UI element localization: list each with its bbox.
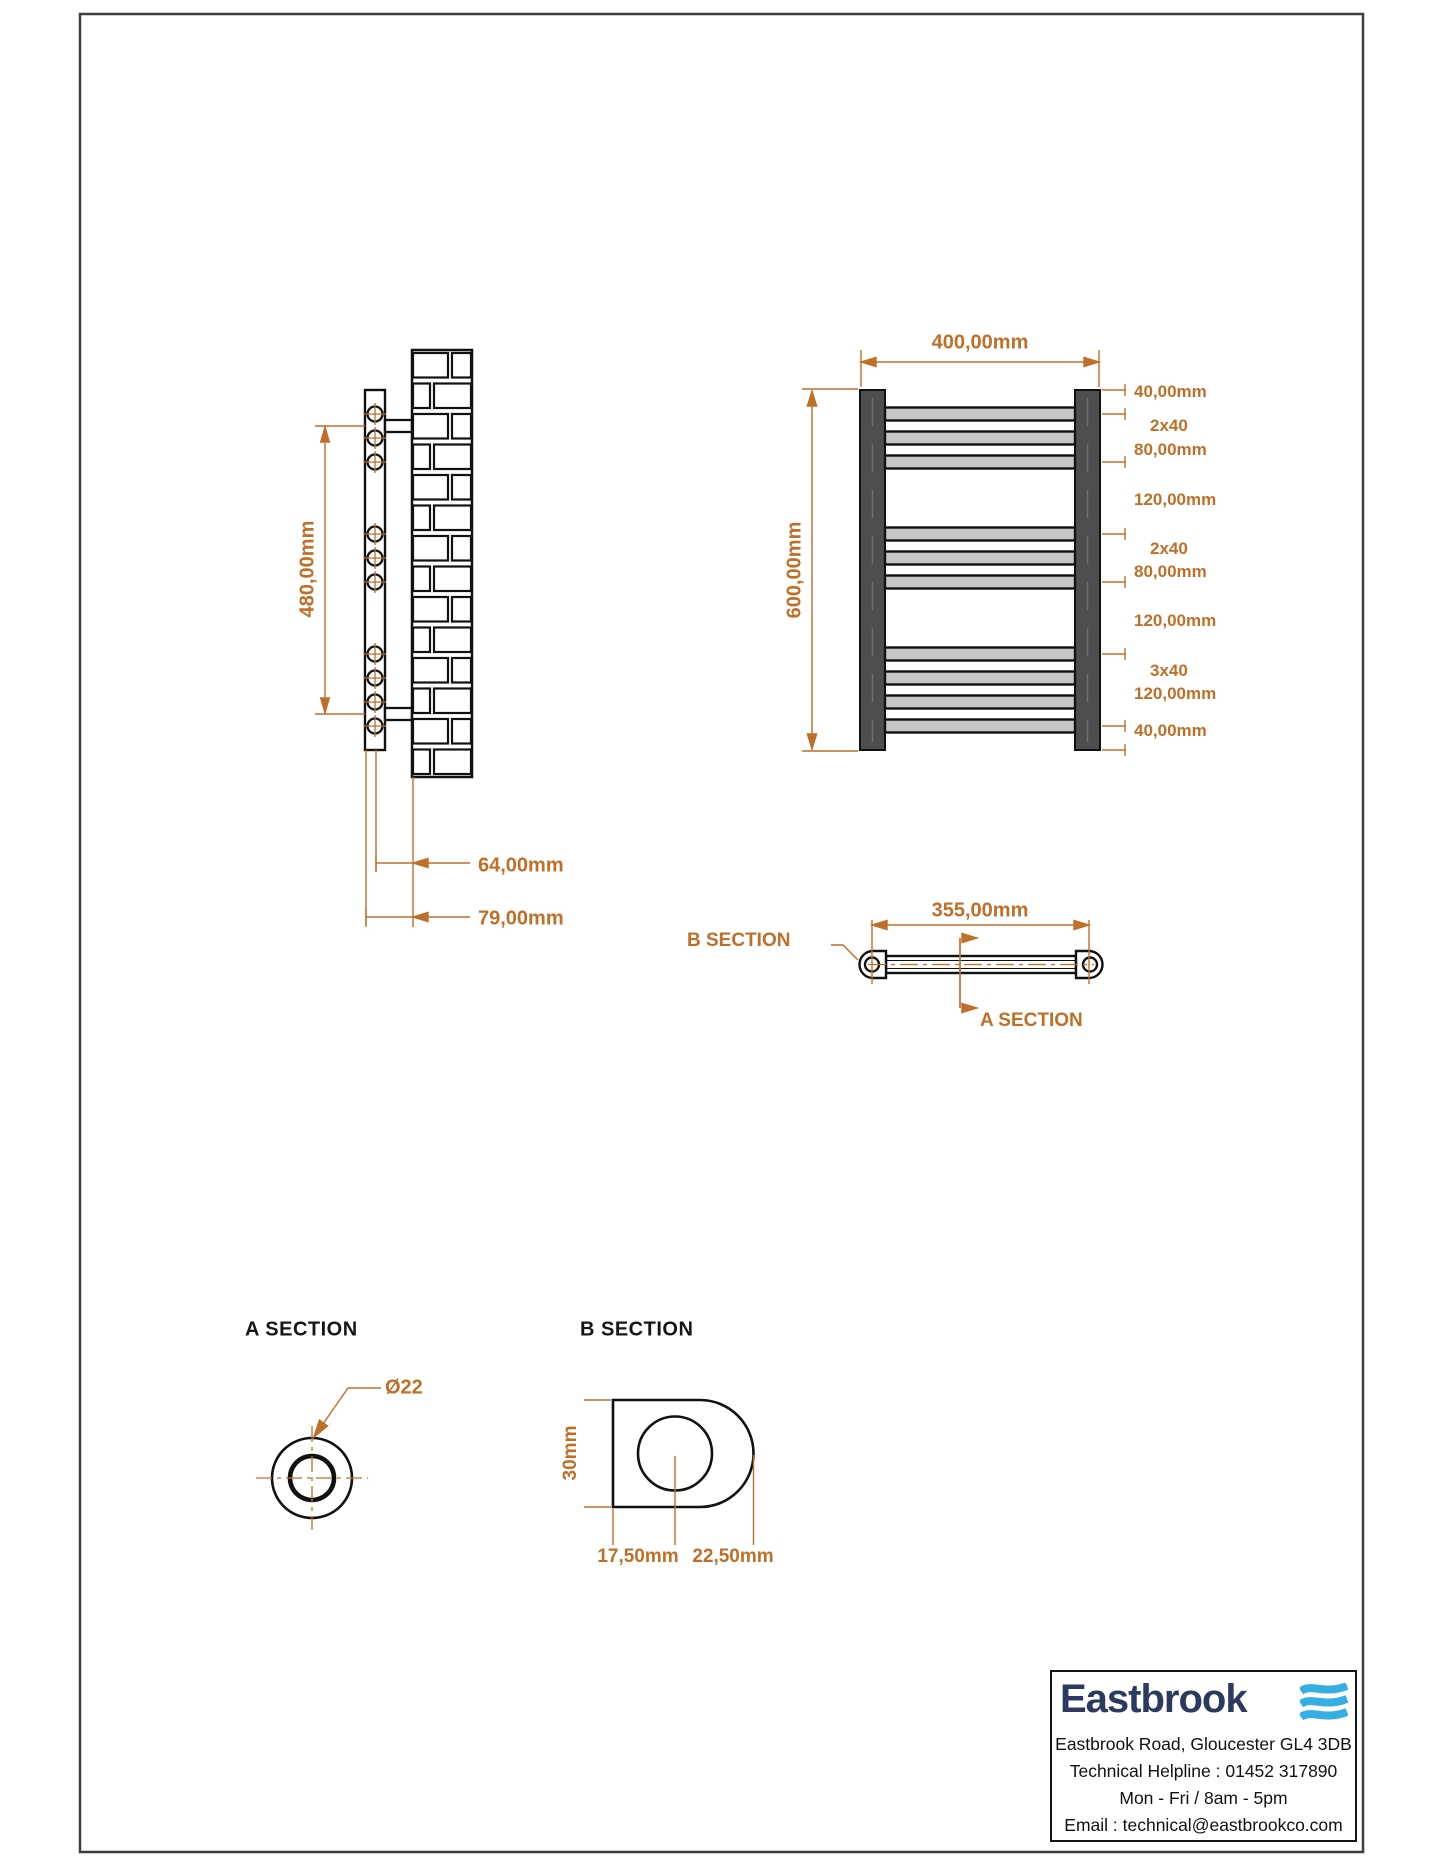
dim-center-to-wall: 64,00mm: [478, 855, 564, 878]
dim-chain-9: 40,00mm: [1134, 721, 1207, 741]
callout-b-section: B SECTION: [687, 930, 790, 952]
technical-drawing-page: 400,00mm 600,00mm 40,00mm 2x40 80,00mm 1…: [0, 0, 1445, 1870]
dim-b-height: 30mm: [560, 1426, 582, 1481]
footer-helpline: Technical Helpline : 01452 317890: [1052, 1760, 1355, 1782]
eastbrook-logo: Eastbrook: [1060, 1677, 1247, 1722]
rungs: [885, 408, 1075, 733]
dim-chain-7: 3x40: [1150, 661, 1188, 681]
tube-plan-drawing: [831, 920, 1103, 1013]
footer-address: Eastbrook Road, Gloucester GL4 3DB: [1052, 1733, 1355, 1755]
b-section-drawing: [584, 1400, 754, 1545]
side-view-drawing: [315, 350, 472, 927]
wave-icon: [1300, 1683, 1348, 1725]
dim-chain-2: 80,00mm: [1134, 440, 1207, 460]
front-view-drawing: [802, 350, 1126, 756]
footer-hours: Mon - Fri / 8am - 5pm: [1052, 1787, 1355, 1809]
dim-chain-0: 40,00mm: [1134, 382, 1207, 402]
dim-bracket-spacing: 480,00mm: [297, 521, 320, 618]
callout-a-section: A SECTION: [980, 1010, 1083, 1032]
dim-face-to-wall: 79,00mm: [478, 908, 564, 931]
dim-chain-1: 2x40: [1150, 416, 1188, 436]
a-section-title: A SECTION: [245, 1319, 358, 1342]
dim-chain-8: 120,00mm: [1134, 684, 1216, 704]
a-section-drawing: [256, 1388, 381, 1530]
title-block: Eastbrook Eastbrook Road, Gloucester GL4…: [1050, 1670, 1357, 1842]
dim-b-depth: 22,50mm: [692, 1546, 773, 1568]
dim-b-centre: 17,50mm: [597, 1546, 678, 1568]
b-section-title: B SECTION: [580, 1319, 693, 1342]
brick-wall: [412, 350, 472, 777]
dim-pipe-centres: 355,00mm: [932, 900, 1029, 923]
dim-chain-3: 120,00mm: [1134, 490, 1216, 510]
dim-front-height: 600,00mm: [784, 522, 807, 619]
footer-email: Email : technical@eastbrookco.com: [1052, 1814, 1355, 1836]
dim-front-width: 400,00mm: [932, 332, 1029, 355]
dim-chain-5: 80,00mm: [1134, 562, 1207, 582]
dim-diameter: Ø22: [385, 1377, 423, 1400]
dim-chain-4: 2x40: [1150, 539, 1188, 559]
dim-chain-6: 120,00mm: [1134, 611, 1216, 631]
